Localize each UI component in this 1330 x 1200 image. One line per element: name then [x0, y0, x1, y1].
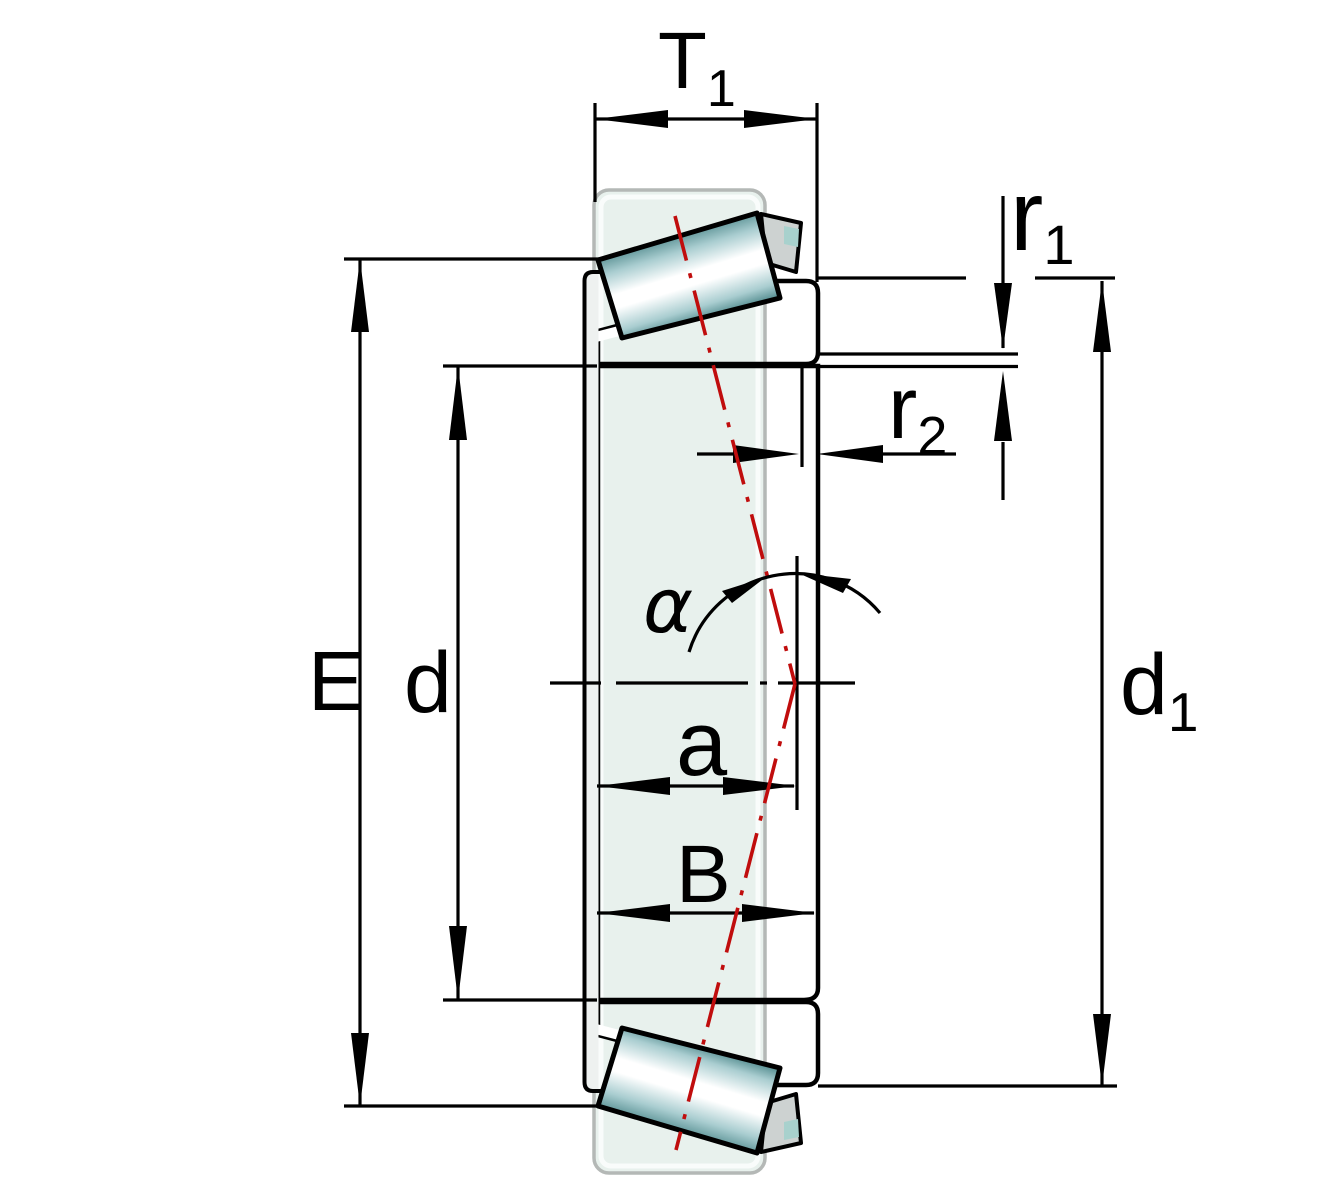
arrowhead-r2-up — [994, 371, 1012, 441]
arrowhead-E-up — [351, 259, 369, 332]
diagram-canvas: T1 r1 r2 E d d1 a B α — [0, 0, 1330, 1200]
label-E: E — [308, 634, 364, 728]
label-d: d — [404, 635, 452, 731]
arrowhead-d-down — [449, 926, 467, 1000]
label-T1: T1 — [658, 16, 736, 118]
label-r1: r1 — [1010, 160, 1074, 276]
rib-sliver-bottom — [784, 1119, 799, 1140]
arrowhead-d1-up — [1093, 281, 1111, 352]
alpha-arrowhead-right — [798, 573, 851, 593]
arrowhead-r1-down — [994, 283, 1012, 349]
label-r2: r2 — [888, 358, 947, 466]
dim-d1 — [1093, 281, 1111, 1086]
label-alpha: α — [643, 561, 693, 650]
arrowhead-T1-left — [595, 110, 668, 128]
arrowhead-T1-right — [744, 110, 817, 128]
arrowhead-d-up — [449, 366, 467, 440]
arrowhead-B-right — [742, 904, 815, 922]
rib-sliver-top — [784, 226, 799, 247]
arrowhead-E-down — [351, 1033, 369, 1106]
label-B: B — [676, 829, 731, 920]
arrowhead-d1-down — [1093, 1014, 1111, 1086]
label-d1: d1 — [1120, 637, 1198, 743]
arrowhead-r2-left — [817, 445, 883, 463]
label-a: a — [676, 693, 728, 795]
bearing-dimension-drawing: T1 r1 r2 E d d1 a B α — [0, 0, 1330, 1200]
